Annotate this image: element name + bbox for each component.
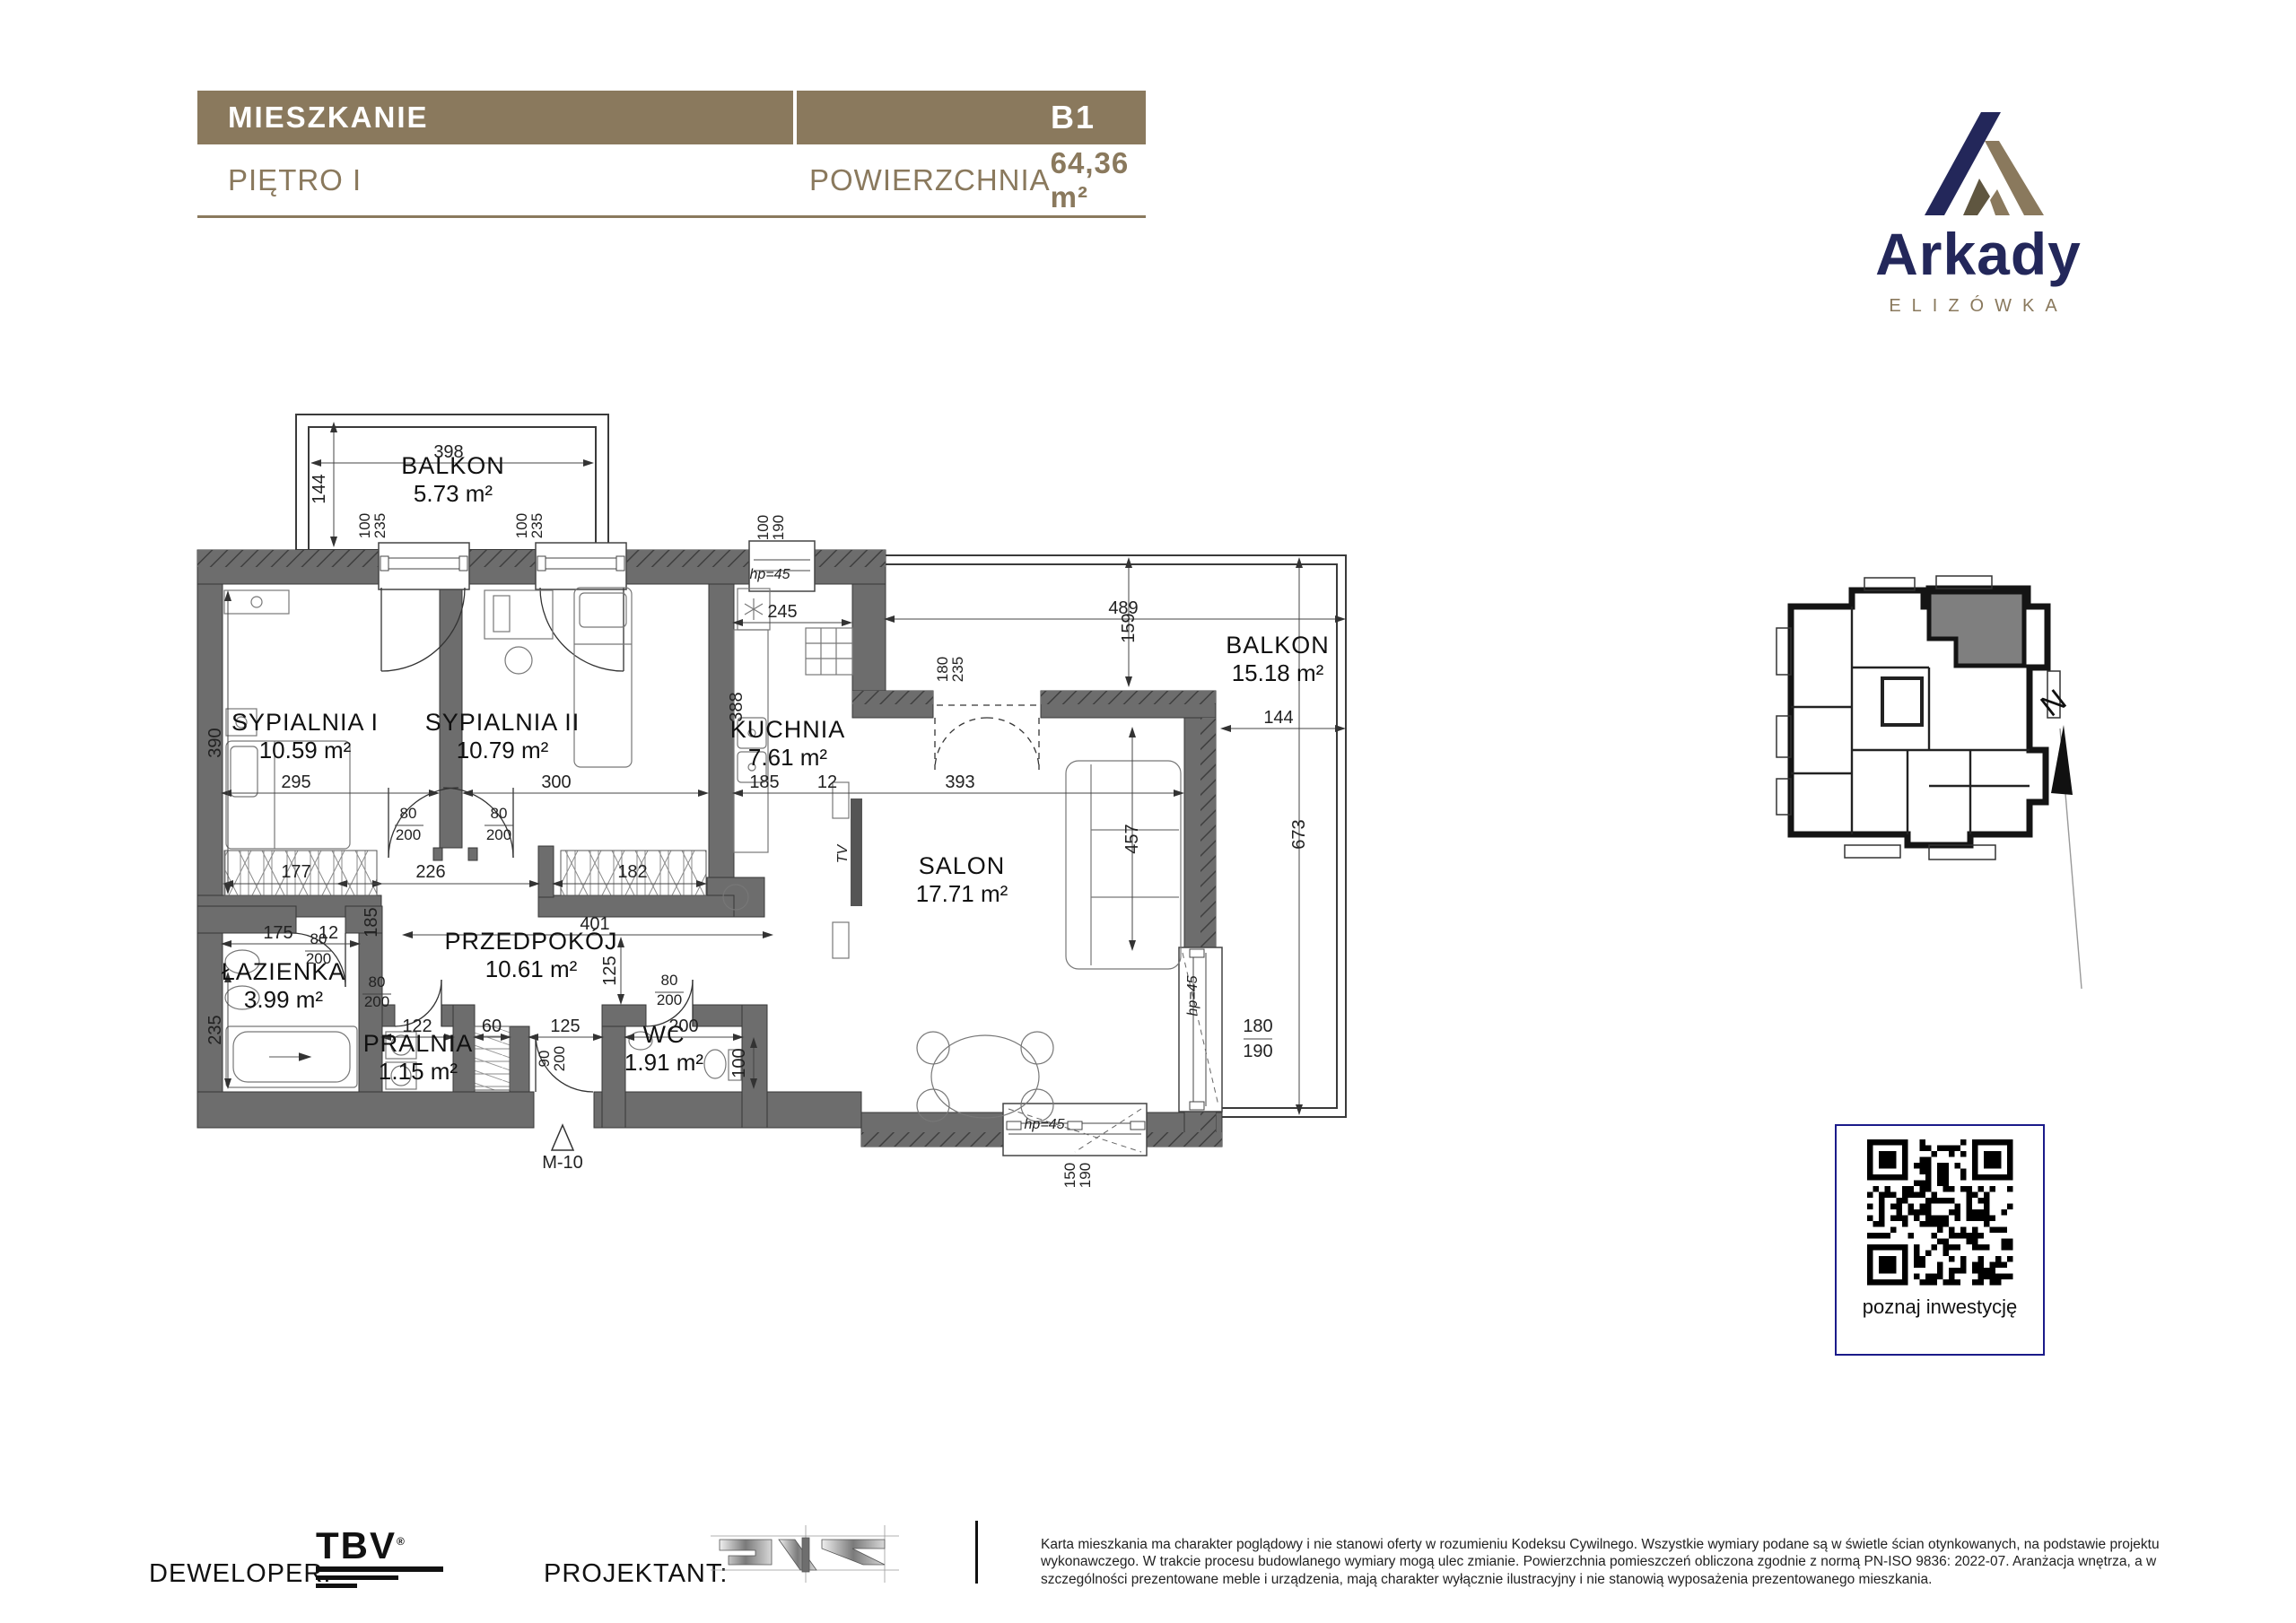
floor-label: PIĘTRO I xyxy=(197,163,362,197)
dimension-label: 200 xyxy=(551,1046,568,1071)
north-arrow-icon: N xyxy=(2035,683,2082,989)
header-left-bar: MIESZKANIE xyxy=(197,91,793,144)
dimension-label: 80 xyxy=(491,805,508,822)
brand-logo: Arkady ELIZÓWKA xyxy=(1839,85,2117,354)
qr-block: poznaj inwestycję xyxy=(1835,1124,2045,1356)
legal-text: Karta mieszkania ma charakter poglądowy … xyxy=(1041,1536,2207,1588)
dimension-label: 125 xyxy=(550,1017,580,1036)
dimension-label: 125 xyxy=(600,955,620,985)
room-area: 10.61 m² xyxy=(485,955,578,982)
developer-name: TBV xyxy=(316,1524,397,1566)
brand-subtitle: ELIZÓWKA xyxy=(1839,296,2117,317)
dimension-label: 393 xyxy=(945,772,974,792)
dimension-label: hp=45 xyxy=(750,567,790,582)
dimension-label: 144 xyxy=(1263,708,1293,728)
building-minimap xyxy=(1777,576,2060,859)
qr-caption: poznaj inwestycję xyxy=(1837,1296,2043,1319)
dimension-label: 185 xyxy=(749,772,779,792)
registered-mark: ® xyxy=(397,1535,406,1548)
dimension-label: 200 xyxy=(396,826,421,843)
dimension-label: 180 xyxy=(1243,1017,1272,1036)
header-right-bar: B1 xyxy=(797,91,1146,144)
room-name: SYPIALNIA II xyxy=(425,709,581,736)
floor-cell: PIĘTRO I xyxy=(197,144,793,215)
room-area: 17.71 m² xyxy=(916,880,1008,907)
qr-code-icon xyxy=(1867,1139,2013,1286)
room-area: 15.18 m² xyxy=(1232,659,1324,686)
dimension-label: 235 xyxy=(528,513,546,538)
designer-logo-icon xyxy=(709,1523,902,1588)
dimension-label: 200 xyxy=(306,950,331,967)
room-area: 10.59 m² xyxy=(259,737,352,764)
dimension-label: 390 xyxy=(205,728,225,757)
room-area: 1.15 m² xyxy=(379,1058,458,1085)
dimension-label: 300 xyxy=(541,772,571,792)
dimension-label: 182 xyxy=(617,862,647,882)
brand-name: Arkady xyxy=(1839,224,2117,284)
dimension-label: 175 xyxy=(263,923,292,943)
dimension-label: hp=45 xyxy=(1185,975,1200,1016)
dimension-label: 190 xyxy=(1243,1042,1272,1061)
dimension-label: 388 xyxy=(727,692,746,721)
tbv-bar xyxy=(316,1575,398,1580)
unit-number: B1 xyxy=(1051,99,1146,136)
designer-label: PROJEKTANT: xyxy=(544,1559,728,1589)
room-area: 10.79 m² xyxy=(457,737,549,764)
room-name: SALON xyxy=(919,852,1006,879)
header-underline xyxy=(197,215,1146,218)
header-table: MIESZKANIE B1 PIĘTRO I POWIERZCHNIA 64,3… xyxy=(197,91,1146,218)
dimension-label: 60 xyxy=(482,1017,502,1036)
dimension-label: 235 xyxy=(371,513,388,538)
dimension-label: 226 xyxy=(415,862,445,882)
room-name: SYPIALNIA I xyxy=(231,709,379,736)
dimension-label: 200 xyxy=(364,993,389,1010)
dimension-label: 235 xyxy=(205,1015,225,1044)
room-area: 1.91 m² xyxy=(624,1049,703,1076)
dimension-label: 100 xyxy=(729,1048,749,1078)
dimension-label: 122 xyxy=(402,1017,432,1036)
dimension-label: 295 xyxy=(281,772,310,792)
dimension-label: 80 xyxy=(400,805,417,822)
dimension-label: hp=45 xyxy=(1025,1117,1065,1132)
dimension-label: 200 xyxy=(486,826,511,843)
dimension-label: 80 xyxy=(310,930,327,947)
dimension-label: 398 xyxy=(433,442,463,462)
north-label: N xyxy=(2035,683,2073,723)
dimension-label: 80 xyxy=(369,973,386,990)
brand-logo-icon xyxy=(1839,85,2117,220)
dimension-label: 245 xyxy=(767,602,797,622)
dimension-label: 12 xyxy=(817,772,837,792)
developer-logo: TBV® xyxy=(316,1527,450,1588)
dimension-label: 190 xyxy=(770,515,787,540)
entrance-marker-icon xyxy=(552,1125,573,1150)
dimension-label: 200 xyxy=(668,1017,698,1036)
room-name: KUCHNIA xyxy=(730,716,846,743)
dimension-label: 200 xyxy=(657,991,682,1008)
area-label: POWIERZCHNIA xyxy=(797,163,1051,197)
area-cell: POWIERZCHNIA 64,36 m² xyxy=(797,144,1146,215)
room-name: BALKON xyxy=(1226,632,1330,659)
dimension-label: 401 xyxy=(580,914,609,934)
dimension-label: M-10 xyxy=(542,1153,583,1173)
dimension-label: 235 xyxy=(949,657,966,682)
dimension-label: 144 xyxy=(310,474,329,503)
room-area: 5.73 m² xyxy=(414,480,493,507)
walls xyxy=(197,550,1222,1147)
room-area: 7.61 m² xyxy=(748,744,827,771)
dimension-label: TV xyxy=(835,843,851,863)
dimension-label: 190 xyxy=(1077,1163,1094,1188)
dimension-label: 457 xyxy=(1122,824,1142,853)
dimension-label: 80 xyxy=(661,972,678,989)
developer-label: DEWELOPER: xyxy=(149,1559,331,1589)
apartment-label: MIESZKANIE xyxy=(197,100,429,135)
area-value: 64,36 m² xyxy=(1051,146,1146,214)
dimension-label: 673 xyxy=(1289,819,1309,849)
dimension-label: 159 xyxy=(1119,613,1139,642)
footer-divider xyxy=(975,1521,978,1584)
dimension-label: 185 xyxy=(362,907,381,937)
tbv-bar xyxy=(316,1584,357,1588)
room-area: 3.99 m² xyxy=(244,986,323,1013)
dimension-label: 177 xyxy=(281,862,310,882)
tbv-bar xyxy=(316,1566,443,1572)
